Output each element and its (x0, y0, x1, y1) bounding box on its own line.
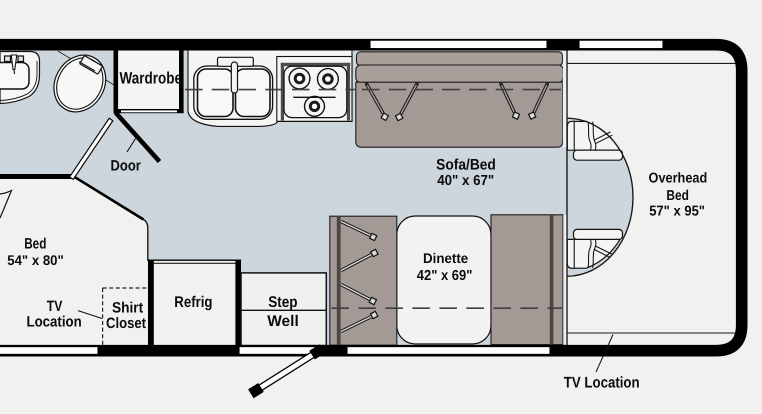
svg-text:Overhead: Overhead (649, 170, 708, 186)
svg-text:Step: Step (268, 294, 297, 311)
svg-text:Refrig: Refrig (174, 294, 212, 311)
svg-text:Wardrobe: Wardrobe (120, 69, 183, 87)
svg-text:TV Location: TV Location (564, 374, 640, 391)
svg-text:Closet: Closet (106, 315, 146, 332)
svg-text:Bed: Bed (24, 235, 46, 252)
svg-text:Sofa/Bed: Sofa/Bed (436, 157, 496, 174)
svg-text:Door: Door (111, 158, 141, 175)
svg-text:Well: Well (267, 313, 299, 330)
svg-text:54" x 80": 54" x 80" (7, 252, 64, 268)
svg-text:40" x 67": 40" x 67" (437, 173, 494, 189)
svg-text:57" x 95": 57" x 95" (649, 203, 705, 219)
svg-text:42" x 69": 42" x 69" (417, 268, 473, 284)
svg-text:Location: Location (27, 313, 82, 330)
svg-text:Shirt: Shirt (112, 300, 143, 317)
svg-text:Bed: Bed (666, 188, 689, 204)
svg-text:Dinette: Dinette (423, 250, 468, 266)
